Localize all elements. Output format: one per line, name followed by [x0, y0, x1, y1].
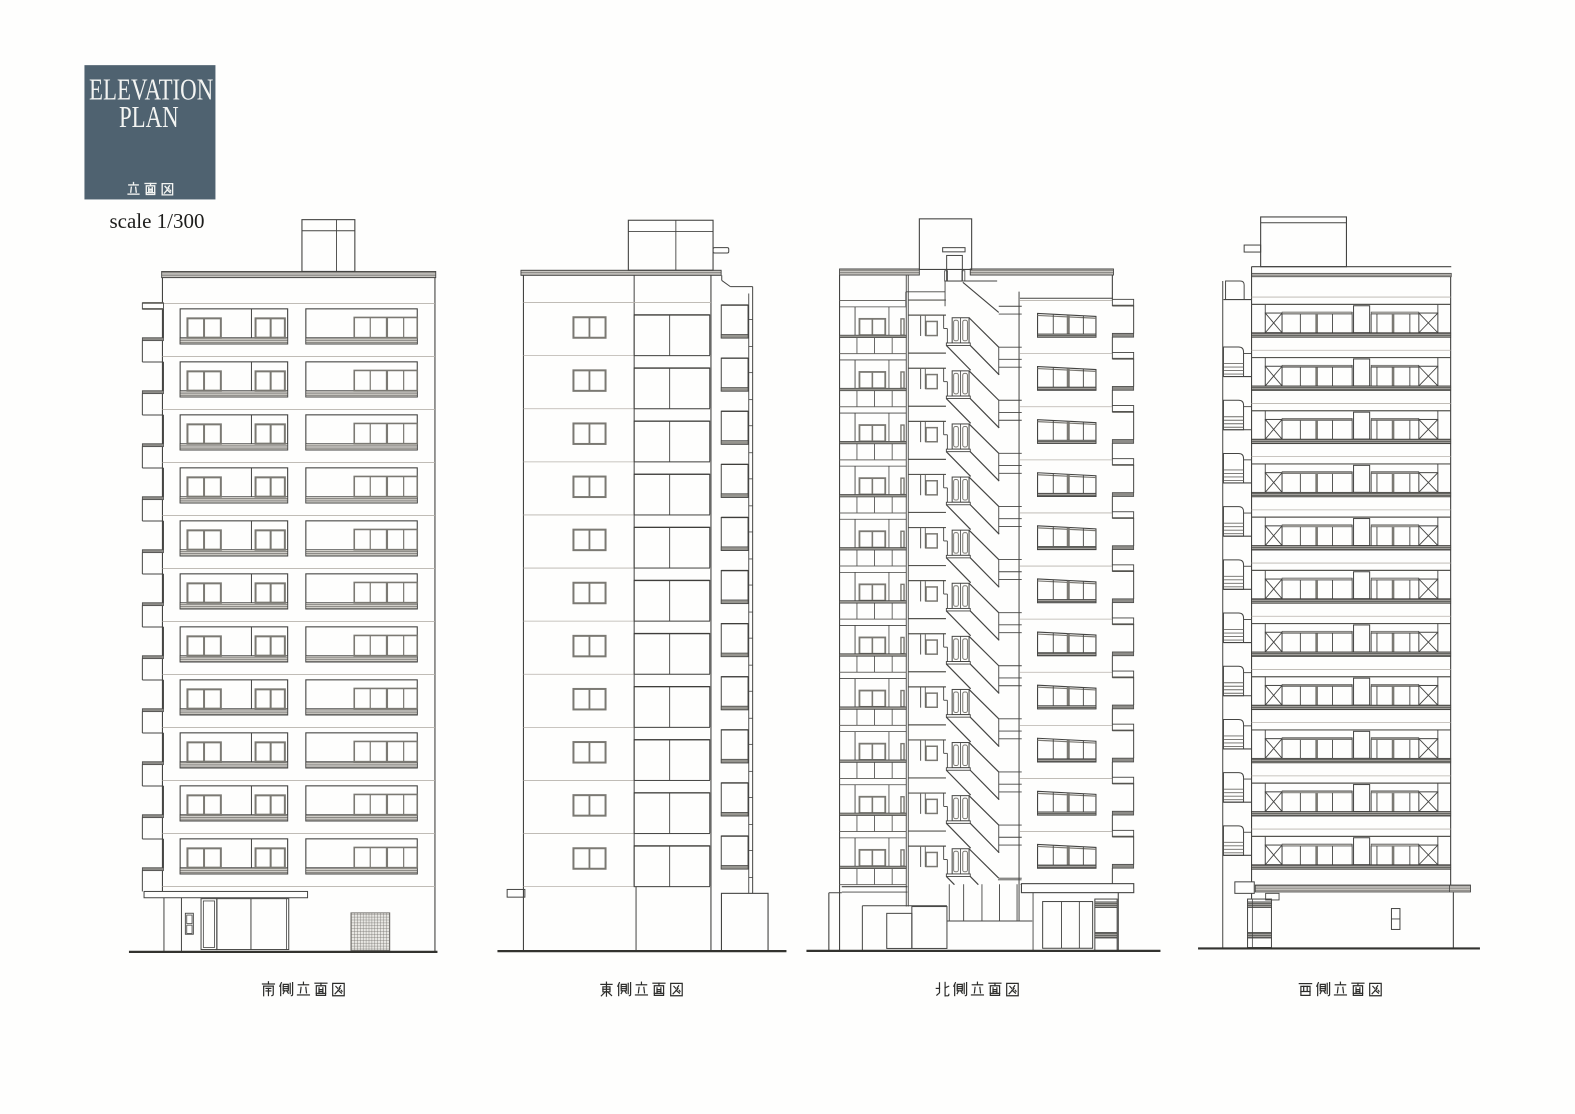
svg-text:PLAN: PLAN — [119, 99, 179, 134]
svg-text:scale 1/300: scale 1/300 — [109, 209, 204, 233]
